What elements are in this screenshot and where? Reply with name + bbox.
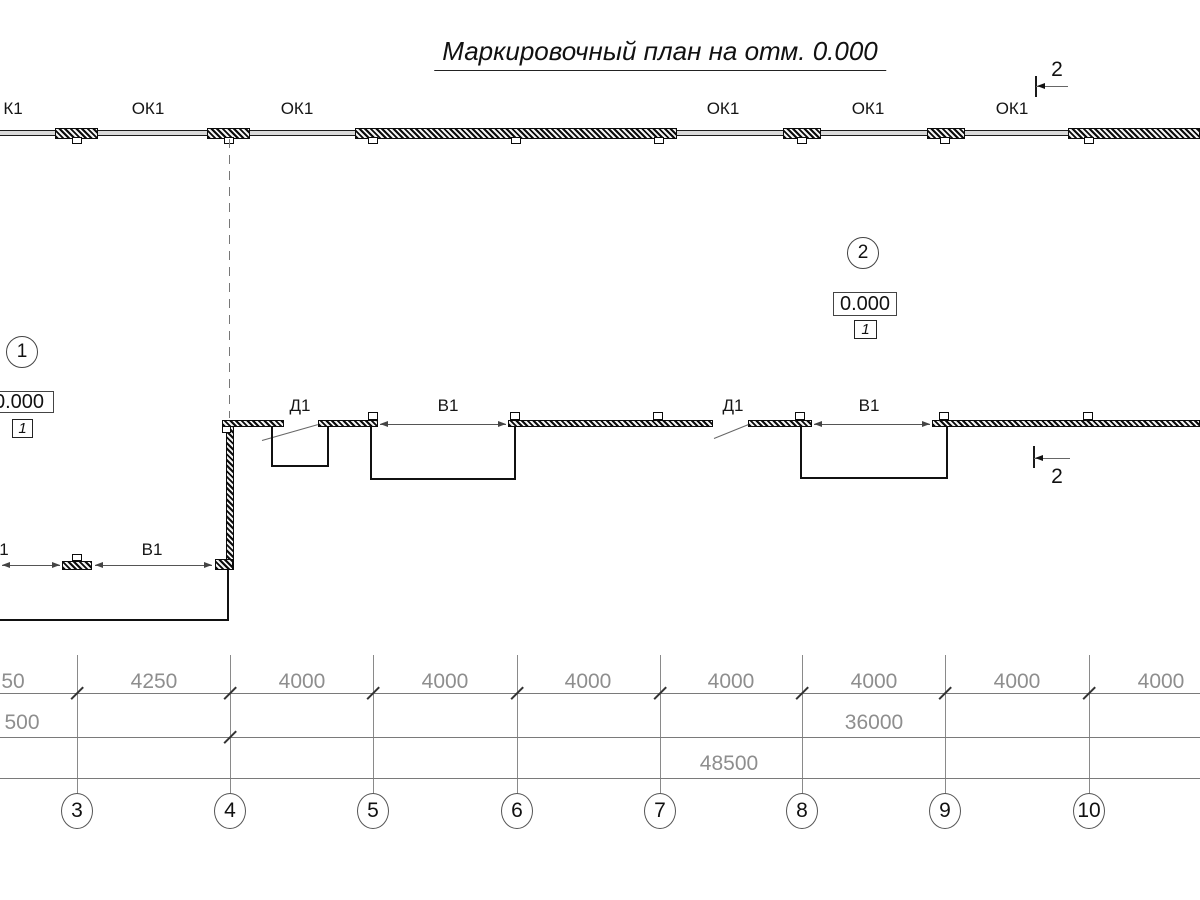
grid-bubble: 5 xyxy=(357,793,389,829)
door-label: Д1 xyxy=(723,396,744,416)
recess-outline xyxy=(800,427,948,479)
wall-pier xyxy=(62,561,92,570)
dimension-label: 4000 xyxy=(994,670,1041,694)
column-tab xyxy=(653,412,663,420)
dimension-label: 4000 xyxy=(708,670,755,694)
column-tab xyxy=(368,137,378,144)
column-tab xyxy=(654,137,664,144)
section-arrow-icon xyxy=(1037,83,1045,89)
elevation-box: 0.000 xyxy=(833,292,897,316)
window-label: ОК1 xyxy=(996,99,1029,119)
column-tab xyxy=(795,412,805,420)
wall-segment xyxy=(932,420,1200,427)
column-tab xyxy=(510,412,520,420)
window-label: ОК1 xyxy=(132,99,165,119)
grid-bubble: 10 xyxy=(1073,793,1105,829)
grid-line xyxy=(373,655,374,794)
elevation-box: 0.000 xyxy=(0,391,54,413)
section-mark-number: 2 xyxy=(1051,58,1063,82)
dimension-label: 500 xyxy=(4,711,39,735)
column-tab xyxy=(939,412,949,420)
column-tab xyxy=(72,137,82,144)
grid-line xyxy=(802,655,803,794)
column-tab xyxy=(1083,412,1093,420)
dimension-label: 50 xyxy=(1,670,24,694)
dimension-label: 4000 xyxy=(279,670,326,694)
dimension-line xyxy=(0,737,1200,738)
grid-line xyxy=(230,655,231,794)
dimension-label: 4000 xyxy=(1138,670,1185,694)
gate-label: В1 xyxy=(859,396,880,416)
section-mark-number: 2 xyxy=(1051,465,1063,489)
layout-tag: 1 xyxy=(12,419,33,438)
grid-bubble: 8 xyxy=(786,793,818,829)
gate-span-line xyxy=(814,424,930,425)
dimension-label: 4000 xyxy=(565,670,612,694)
wall-vertical xyxy=(226,426,234,570)
grid-bubble: 3 xyxy=(61,793,93,829)
grid-bubble: 9 xyxy=(929,793,961,829)
dimension-label: 4000 xyxy=(851,670,898,694)
section-arrow-icon xyxy=(1035,455,1043,461)
gate-arrow-left xyxy=(95,562,103,568)
grid-line xyxy=(517,655,518,794)
grid-line xyxy=(1089,655,1090,794)
gate-label: В1 xyxy=(142,540,163,560)
column-tab xyxy=(1084,137,1094,144)
dimension-label: 48500 xyxy=(700,752,758,776)
layout-tag: 1 xyxy=(854,320,877,339)
wall-corner xyxy=(215,559,233,570)
grid-line xyxy=(77,655,78,794)
column-tab xyxy=(940,137,950,144)
window-label: ОК1 xyxy=(281,99,314,119)
door-swing-line xyxy=(714,424,749,439)
gate-arrow-right xyxy=(204,562,212,568)
gate-label: В1 xyxy=(438,396,459,416)
gate-span-line xyxy=(95,565,212,566)
grid-line xyxy=(660,655,661,794)
drawing-title: Маркировочный план на отм. 0.000 xyxy=(434,36,886,71)
window-label: ОК1 xyxy=(852,99,885,119)
dimension-label: 4250 xyxy=(131,670,178,694)
door-label: Д1 xyxy=(290,396,311,416)
dimension-label: 36000 xyxy=(845,711,903,735)
wall-segment xyxy=(748,420,812,427)
grid-bubble: 4 xyxy=(214,793,246,829)
grid-line xyxy=(945,655,946,794)
gate-label: 1 xyxy=(0,540,9,560)
gate-span-line xyxy=(380,424,506,425)
wall-segment xyxy=(318,420,378,427)
window-label: К1 xyxy=(3,99,22,119)
recess-outline xyxy=(370,427,516,480)
column-tab xyxy=(72,554,82,561)
platform-outline xyxy=(0,570,229,621)
dimension-line xyxy=(0,778,1200,779)
dimension-label: 4000 xyxy=(422,670,469,694)
column-tab xyxy=(222,426,231,433)
window-label: ОК1 xyxy=(707,99,740,119)
grid-bubble: 7 xyxy=(644,793,676,829)
axis-dashed-line xyxy=(229,139,230,418)
floor-plan: Маркировочный план на отм. 0.000 К1ОК1ОК… xyxy=(0,0,1200,900)
column-tab xyxy=(511,137,521,144)
recess-outline xyxy=(271,427,329,467)
zone-bubble: 2 xyxy=(847,237,879,269)
gate-arrow-left xyxy=(2,562,10,568)
gate-arrow-right xyxy=(52,562,60,568)
column-tab xyxy=(797,137,807,144)
column-tab xyxy=(368,412,378,420)
zone-bubble: 1 xyxy=(6,336,38,368)
grid-bubble: 6 xyxy=(501,793,533,829)
wall-segment xyxy=(508,420,713,427)
